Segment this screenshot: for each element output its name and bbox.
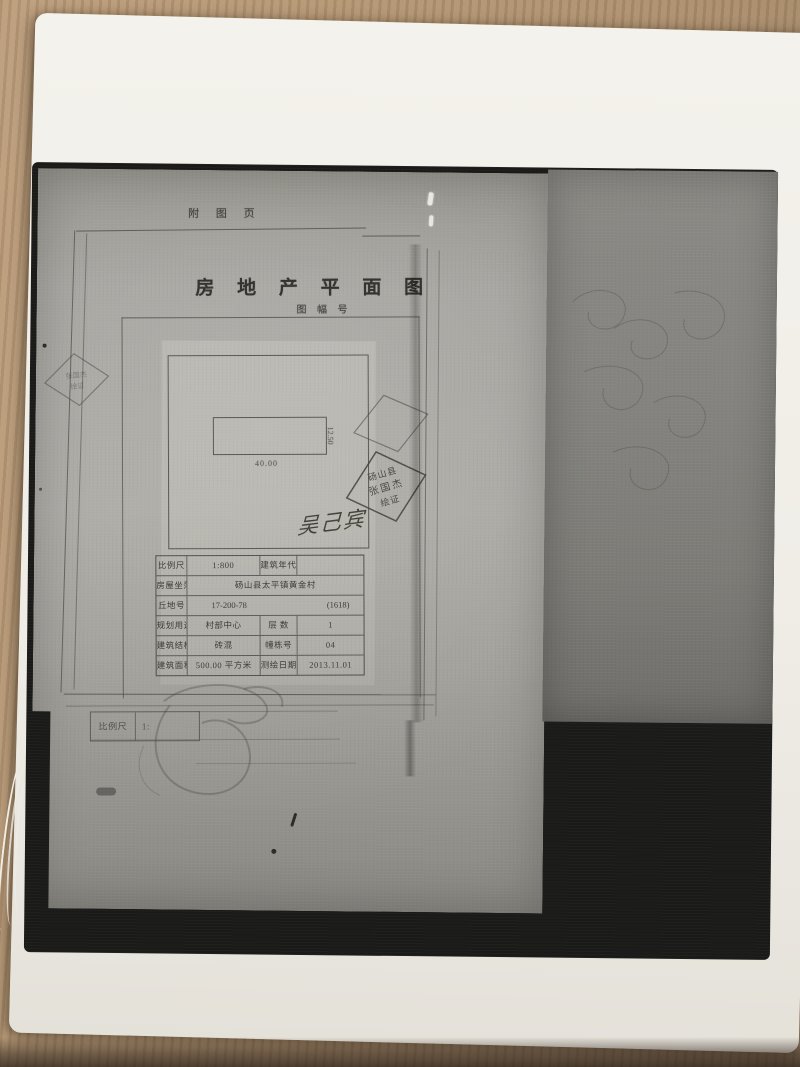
- table-cell-label: 幢栋号: [260, 636, 297, 655]
- table-row: 比例尺 1:800 建筑年代: [156, 556, 363, 576]
- table-cell-value: 1: [297, 616, 364, 635]
- table-cell-value: 17-200-78 (1618): [186, 596, 363, 616]
- table-cell-value: 村部中心: [187, 616, 260, 635]
- sheet-ref-number: (1618): [327, 596, 350, 615]
- frame-line: [73, 234, 87, 690]
- frame-line: [76, 228, 366, 232]
- table-cell-label: 建筑面积: [157, 656, 187, 675]
- table-row: 建筑面积 500.00 平方米 测绘日期 2013.11.01: [157, 655, 364, 676]
- form-border-left: [121, 317, 123, 698]
- width-dimension-label: 40.00: [255, 459, 278, 468]
- table-cell-value: [296, 556, 363, 575]
- building-outline: [213, 417, 327, 455]
- table-cell-label: 丘地号: [156, 596, 186, 615]
- table-cell-label: 建筑年代: [259, 556, 296, 575]
- table-cell-label: 测绘日期: [260, 656, 297, 675]
- table-cell-value: 砀山县太平镇黄金村: [186, 576, 363, 596]
- table-row: 规划用途 村部中心 层 数 1: [157, 615, 364, 636]
- table-cell-label: 建筑结构: [157, 636, 187, 655]
- margin-dot: [43, 344, 47, 348]
- table-cell-value: 1:800: [186, 556, 259, 575]
- fold-edge-line: [435, 250, 439, 716]
- photocopy-area: 附 图 页 房 地 产 平 面 图 图 幅 号 40.00 12.50: [24, 162, 778, 960]
- info-table: 比例尺 1:800 建筑年代 房屋坐落 砀山县太平镇黄金村 丘地号 17-200…: [155, 555, 364, 677]
- attachment-page-label: 附 图 页: [188, 205, 262, 221]
- staple-reflection: [427, 192, 434, 206]
- depth-dimension-label: 12.50: [326, 427, 335, 445]
- table-cell-value: 500.00 平方米: [187, 656, 260, 675]
- fold-shadow: [404, 720, 416, 776]
- staple-reflection: [429, 215, 434, 226]
- ink-mark: [271, 849, 276, 854]
- parcel-number: 17-200-78: [211, 596, 246, 615]
- pencil-scribbles: [124, 675, 314, 816]
- table-cell-label: 比例尺: [156, 556, 186, 575]
- photo-of-document: 附 图 页 房 地 产 平 面 图 图 幅 号 40.00 12.50: [0, 0, 800, 1067]
- margin-dot: [39, 488, 42, 491]
- table-cell-label: 规划用途: [157, 616, 187, 635]
- table-row: 丘地号 17-200-78 (1618): [156, 595, 363, 616]
- ink-smudge: [96, 787, 116, 795]
- table-row: 建筑结构 砖混 幢栋号 04: [157, 635, 364, 656]
- table-row: 房屋坐落 砀山县太平镇黄金村: [156, 575, 363, 596]
- frame-line: [60, 231, 75, 693]
- sheet-number-label: 图 幅 号: [296, 301, 351, 316]
- table-cell-value: 04: [297, 636, 364, 655]
- copied-document-content: 附 图 页 房 地 产 平 面 图 图 幅 号 40.00 12.50: [28, 163, 777, 956]
- table-cell-label: 层 数: [260, 616, 297, 635]
- table-cell-value: 砖混: [187, 636, 260, 655]
- faint-left-stamp: 张国杰 绘证: [40, 348, 114, 411]
- table-cell-value: 2013.11.01: [297, 656, 364, 675]
- frame-line: [362, 235, 420, 236]
- table-cell-label: 房屋坐落: [156, 576, 186, 595]
- plan-title: 房 地 产 平 面 图: [195, 272, 432, 300]
- svg-text:绘证: 绘证: [70, 381, 85, 391]
- svg-text:张国杰: 张国杰: [65, 369, 87, 380]
- form-border-top: [121, 316, 419, 318]
